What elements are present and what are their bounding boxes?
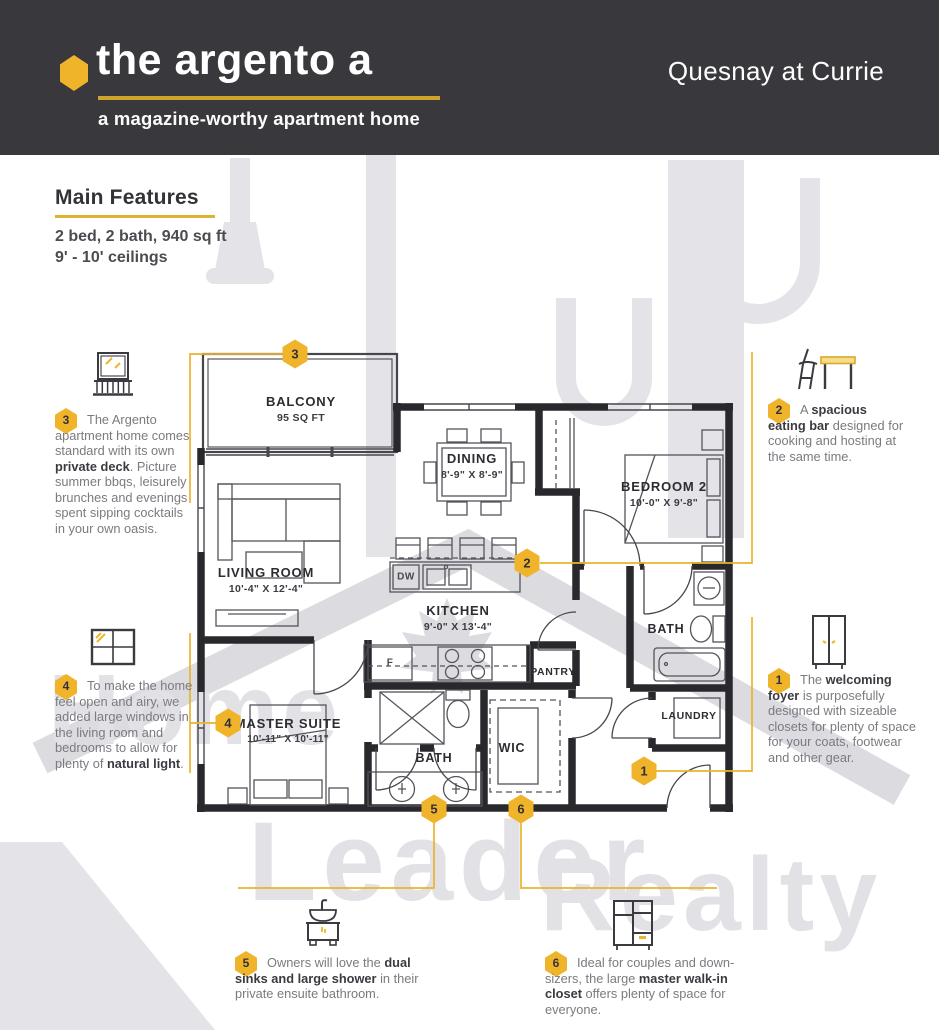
callout-3-text: The Argento apartment home comes standar… bbox=[55, 412, 195, 536]
room-label-bath-main: BATH bbox=[648, 622, 685, 636]
balcony-icon bbox=[89, 351, 137, 401]
room-label-dining: DINING 8'-9" X 8'-9" bbox=[441, 451, 503, 481]
vanity-sink-icon bbox=[296, 897, 346, 949]
callout-5-text: Owners will love the dual sinks and larg… bbox=[235, 955, 435, 1002]
features-heading: Main Features bbox=[55, 186, 227, 210]
window-icon bbox=[89, 626, 137, 670]
room-label-kitchen: KITCHEN 9'-0" X 13'-4" bbox=[424, 603, 492, 633]
features-underline bbox=[55, 215, 215, 218]
callout-1-text: The welcoming foyer is purposefully desi… bbox=[768, 672, 918, 765]
room-label-wic: WIC bbox=[499, 741, 526, 755]
foyer-closet-icon bbox=[806, 614, 852, 672]
callout-2-text: A spacious eating bar designed for cooki… bbox=[768, 402, 908, 464]
title-underline bbox=[98, 96, 440, 100]
callout-3: 3 The Argento apartment home comes stand… bbox=[55, 412, 195, 536]
features-ceilings: 9' - 10' ceilings bbox=[55, 247, 227, 268]
eating-bar-icon bbox=[795, 347, 857, 391]
callout-1: 1 The welcoming foyer is purposefully de… bbox=[768, 672, 918, 765]
room-label-balcony: BALCONY 95 SQ FT bbox=[266, 394, 336, 424]
brand-hexagon-icon bbox=[60, 55, 88, 91]
floorplan-flyer: Home Leader Realty bbox=[0, 0, 939, 1030]
walkin-closet-icon bbox=[608, 899, 658, 951]
room-label-bath-ensuite: BATH bbox=[416, 751, 453, 765]
plan-subtitle: a magazine-worthy apartment home bbox=[98, 108, 420, 130]
room-label-pantry: PANTRY bbox=[530, 666, 576, 678]
main-features: Main Features 2 bed, 2 bath, 940 sq ft 9… bbox=[55, 186, 227, 268]
header: the argento a a magazine-worthy apartmen… bbox=[0, 0, 939, 155]
callout-6-text: Ideal for couples and down-sizers, the l… bbox=[545, 955, 745, 1017]
callout-5: 5 Owners will love the dual sinks and la… bbox=[235, 955, 435, 1002]
project-name: Quesnay at Currie bbox=[668, 56, 884, 87]
fridge-label: F bbox=[387, 658, 394, 669]
callout-2: 2 A spacious eating bar designed for coo… bbox=[768, 402, 908, 464]
callout-6: 6 Ideal for couples and down-sizers, the… bbox=[545, 955, 745, 1017]
room-label-living: LIVING ROOM 10'-4" X 12'-4" bbox=[218, 565, 314, 595]
room-label-master: MASTER SUITE 10'-11" X 10'-11" bbox=[232, 717, 344, 745]
callout-4: 4 To make the home feel open and airy, w… bbox=[55, 678, 203, 771]
callout-4-text: To make the home feel open and airy, we … bbox=[55, 678, 203, 771]
plan-title: the argento a bbox=[96, 36, 373, 85]
room-label-bedroom2: BEDROOM 2 10'-0" X 9'-8" bbox=[621, 479, 707, 509]
features-specs: 2 bed, 2 bath, 940 sq ft bbox=[55, 226, 227, 247]
dishwasher-label: DW bbox=[397, 572, 415, 583]
room-label-laundry: LAUNDRY bbox=[661, 710, 716, 722]
